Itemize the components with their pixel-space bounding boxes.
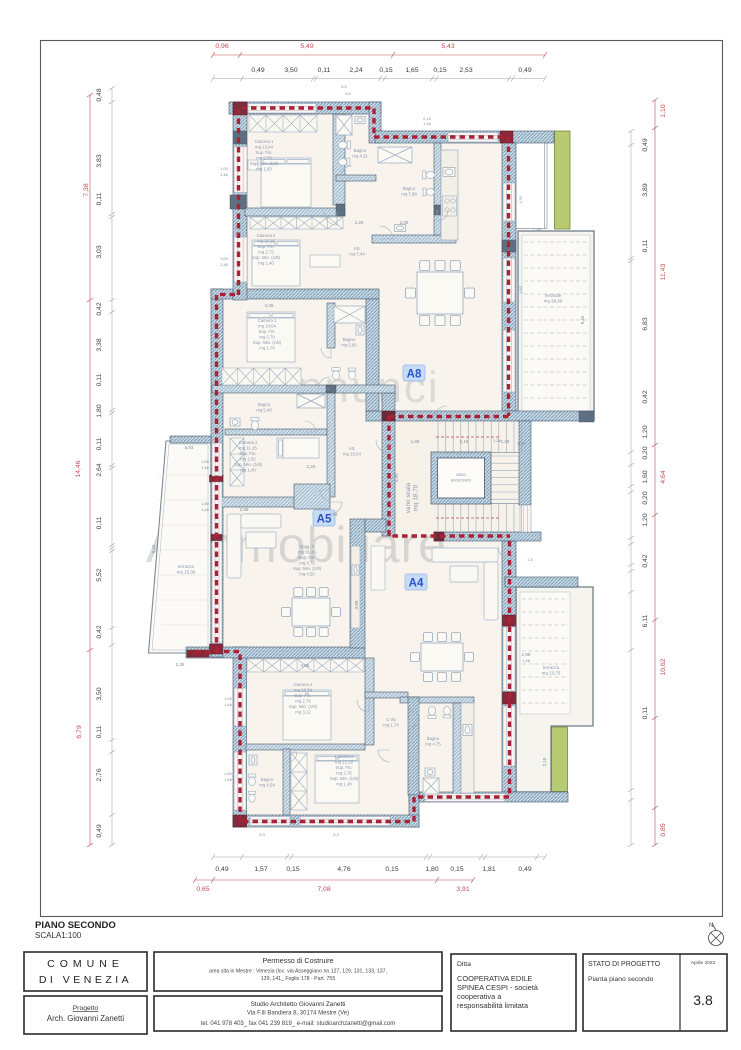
svg-text:tel. 041 978 403_ fax 041 239: tel. 041 978 403_ fax 041 239 819_ e-mai… [201,1021,396,1027]
svg-text:1,46: 1,46 [224,702,233,707]
svg-text:1,20: 1,20 [518,195,523,204]
svg-text:Via F.lli Bandiera 8, 30174 Me: Via F.lli Bandiera 8, 30174 Mestre (Ve) [247,1011,349,1017]
svg-text:0,49: 0,49 [215,866,228,873]
svg-text:SCALA1:100: SCALA1:100 [35,931,82,940]
svg-text:1,80: 1,80 [425,866,438,873]
svg-text:4,64: 4,64 [660,470,667,483]
svg-text:3,80: 3,80 [354,600,359,609]
svg-text:vano scalamq 18,70: vano scalamq 18,70 [405,482,420,513]
svg-text:N: N [709,923,713,929]
svg-text:3,50: 3,50 [284,67,297,74]
svg-text:Pianta piano secondo: Pianta piano secondo [588,976,654,983]
svg-text:1,40: 1,40 [533,227,542,232]
svg-text:Bagnomq 5,48: Bagnomq 5,48 [256,402,272,413]
svg-text:9,43: 9,43 [580,315,585,324]
svg-text:2,05: 2,05 [400,220,409,225]
svg-text:0,11: 0,11 [96,437,103,450]
svg-text:0,11: 0,11 [642,706,649,719]
svg-text:A4: A4 [409,578,424,590]
svg-text:0,65: 0,65 [196,886,209,893]
svg-text:3.8: 3.8 [693,992,713,1008]
svg-text:SPINEA CESPI - società: SPINEA CESPI - società [457,983,539,992]
svg-text:1,46: 1,46 [220,262,229,267]
svg-text:terrazzomq 15,36: terrazzomq 15,36 [177,564,196,575]
svg-text:DI VENEZIA: DI VENEZIA [39,974,132,986]
svg-text:0,11: 0,11 [96,516,103,529]
svg-text:2,24: 2,24 [349,67,362,74]
svg-text:1,80: 1,80 [224,771,233,776]
svg-text:2,64: 2,64 [96,463,103,476]
svg-text:0,15: 0,15 [450,866,463,873]
svg-text:2,35: 2,35 [176,662,185,667]
svg-text:2,53: 2,53 [459,67,472,74]
svg-text:0,49: 0,49 [96,824,103,837]
svg-text:3,83: 3,83 [96,154,103,167]
svg-text:STATO DI PROGETTO: STATO DI PROGETTO [588,961,661,968]
svg-text:0,42: 0,42 [642,390,649,403]
svg-text:0,96: 0,96 [215,43,228,50]
svg-text:9,3: 9,3 [333,832,339,837]
svg-text:2,16: 2,16 [460,439,469,444]
svg-text:2,99: 2,99 [240,507,249,512]
svg-text:0,15: 0,15 [423,117,430,121]
svg-text:Bagnomq 4,75: Bagnomq 4,75 [425,736,441,747]
svg-text:3,38: 3,38 [96,338,103,351]
svg-text:0,11: 0,11 [96,725,103,738]
svg-text:2,15: 2,15 [542,757,547,766]
svg-text:COOPERATIVA EDILE: COOPERATIVA EDILE [457,974,532,983]
svg-text:6,83: 6,83 [642,317,649,330]
svg-text:0,15: 0,15 [433,67,446,74]
svg-text:139, 141_ Foglio 178 - Part. 7: 139, 141_ Foglio 178 - Part. 755 [261,976,336,982]
svg-text:3,89: 3,89 [642,183,649,196]
svg-text:Bagnomq 5,80: Bagnomq 5,80 [341,337,357,348]
svg-text:4,95: 4,95 [301,663,310,668]
svg-text:3,91: 3,91 [456,886,469,893]
svg-text:7,38: 7,38 [83,183,90,196]
svg-text:cooperativa a: cooperativa a [457,992,502,1001]
svg-text:1,46: 1,46 [220,172,229,177]
svg-text:1,60: 1,60 [642,470,649,483]
svg-text:0,49: 0,49 [642,138,649,151]
svg-text:1,50: 1,50 [518,285,523,294]
svg-text:3,50: 3,50 [96,687,103,700]
svg-text:area sita in Mestre : Venezia: area sita in Mestre : Venezia (loc. via … [209,969,387,975]
svg-text:Bagnomq 4,54: Bagnomq 4,54 [259,777,275,788]
svg-text:0,20: 0,20 [642,491,649,504]
svg-text:terrazzamq 23,75: terrazzamq 23,75 [542,665,561,676]
svg-text:Bagnomq 4,31: Bagnomq 4,31 [352,148,368,159]
svg-text:0,11: 0,11 [318,67,331,74]
svg-text:Arch. Giovanni Zanetti: Arch. Giovanni Zanetti [47,1014,124,1023]
svg-text:1,34: 1,34 [329,512,338,517]
svg-text:0,49: 0,49 [518,866,531,873]
svg-text:1,46: 1,46 [423,122,430,126]
svg-text:11,43: 11,43 [660,264,667,281]
svg-text:5,52: 5,52 [96,568,103,581]
svg-text:1,00: 1,00 [220,256,229,261]
svg-text:0,15: 0,15 [286,866,299,873]
svg-text:14,46: 14,46 [75,460,82,477]
svg-text:Bagnomq 7,88: Bagnomq 7,88 [401,186,417,197]
svg-text:1,26: 1,26 [493,438,502,443]
svg-text:0,15: 0,15 [385,866,398,873]
svg-text:0,42: 0,42 [96,302,103,315]
svg-text:4,76: 4,76 [337,866,350,873]
svg-text:1,95: 1,95 [522,652,531,657]
svg-text:1,26: 1,26 [501,439,510,444]
svg-text:7,08: 7,08 [317,886,330,893]
svg-text:1,80: 1,80 [96,404,103,417]
svg-text:Ditta: Ditta [457,961,471,968]
svg-text:9,3: 9,3 [259,832,265,837]
svg-text:responsabilità limitata: responsabilità limitata [457,1001,529,1010]
svg-text:6,79: 6,79 [76,725,83,738]
svg-text:0,49: 0,49 [518,67,531,74]
svg-text:1,20: 1,20 [355,220,364,225]
svg-text:0,42: 0,42 [96,625,103,638]
svg-text:1,00: 1,00 [220,166,229,171]
svg-text:3,03: 3,03 [96,245,103,258]
svg-text:1,46: 1,46 [224,777,233,782]
svg-text:4,40: 4,40 [394,473,399,482]
svg-text:0,11: 0,11 [96,192,103,205]
svg-text:0,49: 0,49 [251,67,264,74]
svg-text:8,44: 8,44 [151,544,156,553]
svg-text:1,20: 1,20 [642,425,649,438]
svg-text:5,03: 5,03 [185,445,194,450]
svg-text:COMUNE: COMUNE [47,958,124,970]
svg-text:1,80: 1,80 [201,501,210,506]
svg-text:1,46: 1,46 [522,658,531,663]
svg-text:5,49: 5,49 [300,43,313,50]
svg-text:1,46: 1,46 [201,465,210,470]
svg-text:5,5: 5,5 [341,85,346,89]
svg-text:1,05: 1,05 [201,459,210,464]
svg-text:1,46: 1,46 [201,507,210,512]
svg-text:verandemq 38,88: verandemq 38,88 [544,293,563,304]
svg-text:2,76: 2,76 [96,768,103,781]
svg-text:0,48: 0,48 [96,88,103,101]
svg-text:6,11: 6,11 [642,614,649,627]
svg-text:0,42: 0,42 [642,554,649,567]
svg-text:Studio Architetto Giovanni Zan: Studio Architetto Giovanni Zanetti [251,1001,346,1008]
svg-text:1,00: 1,00 [224,696,233,701]
svg-text:1,57: 1,57 [254,866,267,873]
svg-text:Progetto: Progetto [73,1005,99,1012]
svg-text:5,43: 5,43 [441,43,454,50]
svg-text:Permesso di Costruire: Permesso di Costruire [262,956,333,965]
svg-text:PIANO SECONDO: PIANO SECONDO [35,920,116,931]
svg-text:0,11: 0,11 [642,239,649,252]
svg-text:0,15: 0,15 [379,67,392,74]
svg-text:0,20: 0,20 [642,446,649,459]
svg-text:5,5: 5,5 [345,92,350,96]
svg-text:1,80: 1,80 [411,439,420,444]
svg-text:1,81: 1,81 [482,866,495,873]
svg-text:1,20: 1,20 [307,464,316,469]
svg-text:1,5: 1,5 [527,557,533,562]
svg-text:1,10: 1,10 [660,104,667,117]
svg-text:0,11: 0,11 [96,373,103,386]
svg-text:1,26: 1,26 [517,441,526,446]
svg-text:1,65: 1,65 [405,67,418,74]
svg-text:A8: A8 [407,369,422,381]
svg-text:Aprile 2023: Aprile 2023 [691,960,716,966]
svg-text:4,25: 4,25 [265,303,274,308]
svg-text:1,20: 1,20 [642,513,649,526]
svg-text:0,85: 0,85 [660,823,667,836]
svg-text:10,62: 10,62 [660,658,667,675]
